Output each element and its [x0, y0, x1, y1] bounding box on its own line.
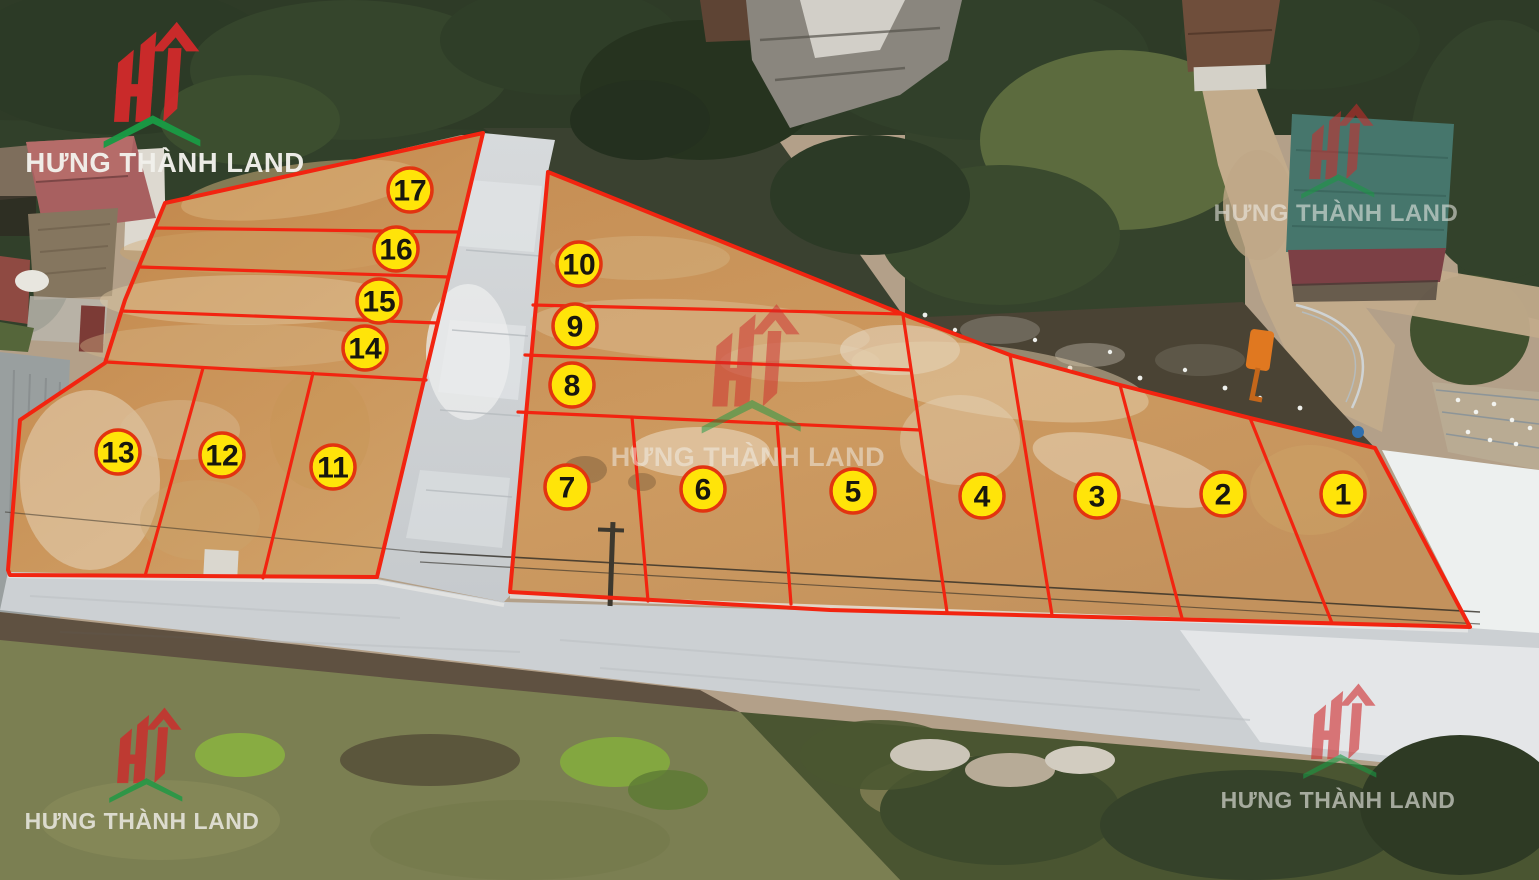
brand-name-text: HƯNG THÀNH LAND: [1221, 786, 1456, 813]
brand-name-text: HƯNG THÀNH LAND: [25, 147, 304, 178]
plot-number-label: 2: [1215, 479, 1232, 512]
teal-roof-building: [1286, 114, 1454, 252]
photo-background: HƯNG THÀNH LAND HƯNG THÀNH LAND HƯNG THÀ…: [0, 0, 1539, 880]
plot-badge-8: 8: [550, 363, 594, 407]
brand-name-text: HƯNG THÀNH LAND: [25, 807, 260, 834]
plot-number-label: 3: [1089, 481, 1106, 514]
plot-badge-14: 14: [343, 326, 387, 370]
plot-number-label: 15: [362, 286, 395, 319]
aerial-photo-canvas: HƯNG THÀNH LAND HƯNG THÀNH LAND HƯNG THÀ…: [0, 0, 1539, 880]
plot-number-label: 1: [1335, 479, 1352, 512]
plot-badge-10: 10: [557, 242, 601, 286]
plot-badge-17: 17: [388, 168, 432, 212]
plot-number-label: 10: [562, 249, 595, 282]
plot-number-label: 11: [317, 452, 349, 485]
brand-name-text: HƯNG THÀNH LAND: [1214, 199, 1459, 227]
plot-number-label: 13: [101, 437, 134, 470]
plot-badge-9: 9: [553, 304, 597, 348]
brand-name-text: HƯNG THÀNH LAND: [611, 441, 885, 472]
plot-badge-16: 16: [374, 227, 418, 271]
plot-badge-7: 7: [545, 465, 589, 509]
plot-number-label: 7: [559, 472, 576, 505]
plot-badge-6: 6: [681, 467, 725, 511]
plot-number-label: 12: [205, 440, 238, 473]
plot-number-label: 16: [379, 234, 412, 267]
plot-badge-4: 4: [960, 474, 1004, 518]
plot-number-label: 4: [974, 481, 991, 514]
plot-badge-5: 5: [831, 469, 875, 513]
small-shed: [203, 549, 238, 577]
plot-badge-11: 11: [311, 445, 355, 489]
plot-number-label: 9: [567, 311, 584, 344]
plot-badge-3: 3: [1075, 474, 1119, 518]
plot-number-label: 17: [393, 175, 426, 208]
plot-badge-13: 13: [96, 430, 140, 474]
plot-number-label: 6: [695, 474, 712, 507]
plot-badge-15: 15: [357, 279, 401, 323]
plot-number-label: 5: [845, 476, 862, 509]
blue-barrel: [1352, 426, 1364, 438]
plot-number-label: 14: [348, 333, 382, 366]
plot-badge-2: 2: [1201, 472, 1245, 516]
plot-badge-12: 12: [200, 433, 244, 477]
plot-badge-1: 1: [1321, 472, 1365, 516]
plot-number-label: 8: [564, 370, 581, 403]
water-tank: [15, 270, 49, 292]
aerial-plot-map: HƯNG THÀNH LAND HƯNG THÀNH LAND HƯNG THÀ…: [0, 0, 1539, 880]
